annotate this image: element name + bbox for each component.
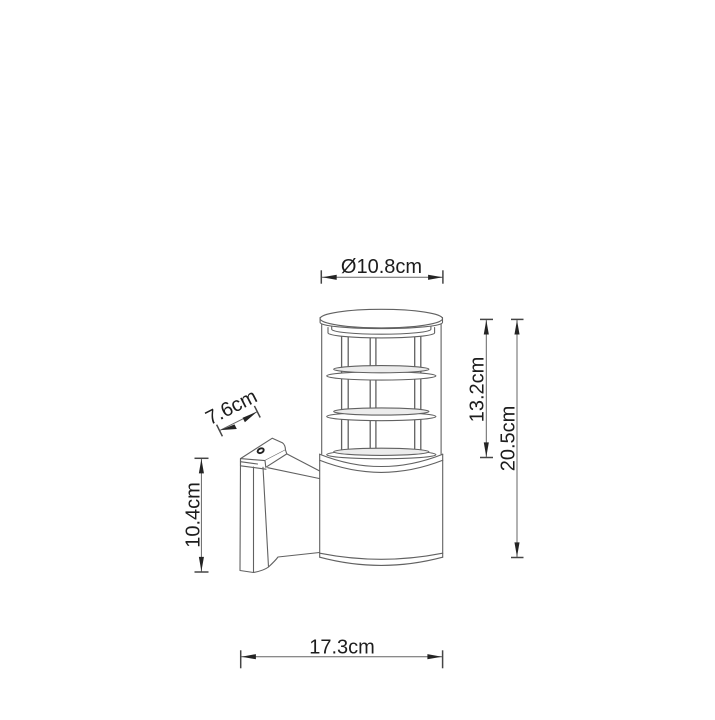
svg-text:13.2cm: 13.2cm (467, 357, 489, 423)
svg-text:10.4cm: 10.4cm (183, 482, 205, 548)
svg-text:Ø10.8cm: Ø10.8cm (341, 256, 422, 278)
svg-text:17.3cm: 17.3cm (309, 637, 375, 659)
svg-text:20.5cm: 20.5cm (498, 406, 520, 472)
